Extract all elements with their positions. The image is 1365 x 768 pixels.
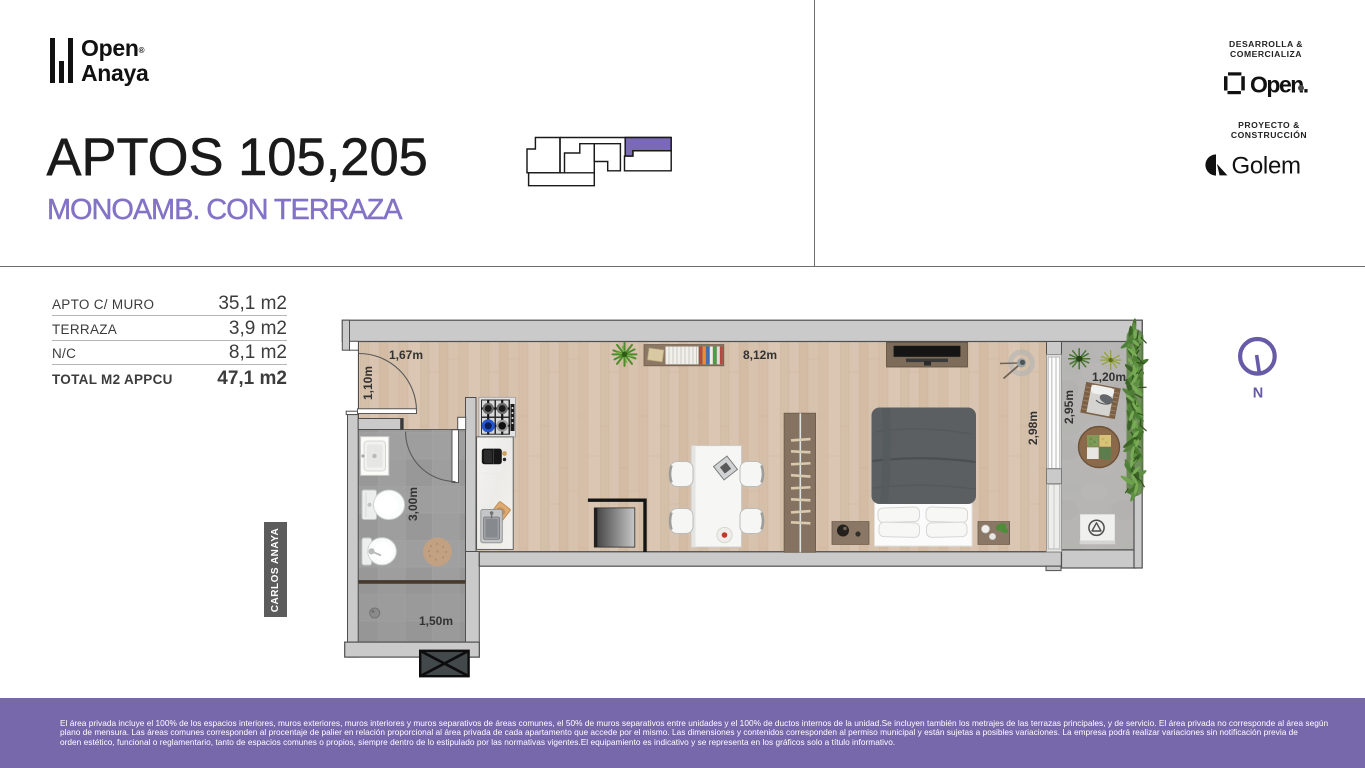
svg-text:1,10m: 1,10m	[361, 366, 375, 400]
svg-text:1,67m: 1,67m	[389, 348, 423, 362]
svg-text:2,98m: 2,98m	[1026, 411, 1040, 445]
svg-text:3,00m: 3,00m	[406, 487, 420, 521]
svg-text:8,12m: 8,12m	[743, 348, 777, 362]
svg-text:1,50m: 1,50m	[419, 614, 453, 628]
svg-text:1,20m: 1,20m	[1092, 370, 1126, 384]
svg-text:2,95m: 2,95m	[1062, 390, 1076, 424]
